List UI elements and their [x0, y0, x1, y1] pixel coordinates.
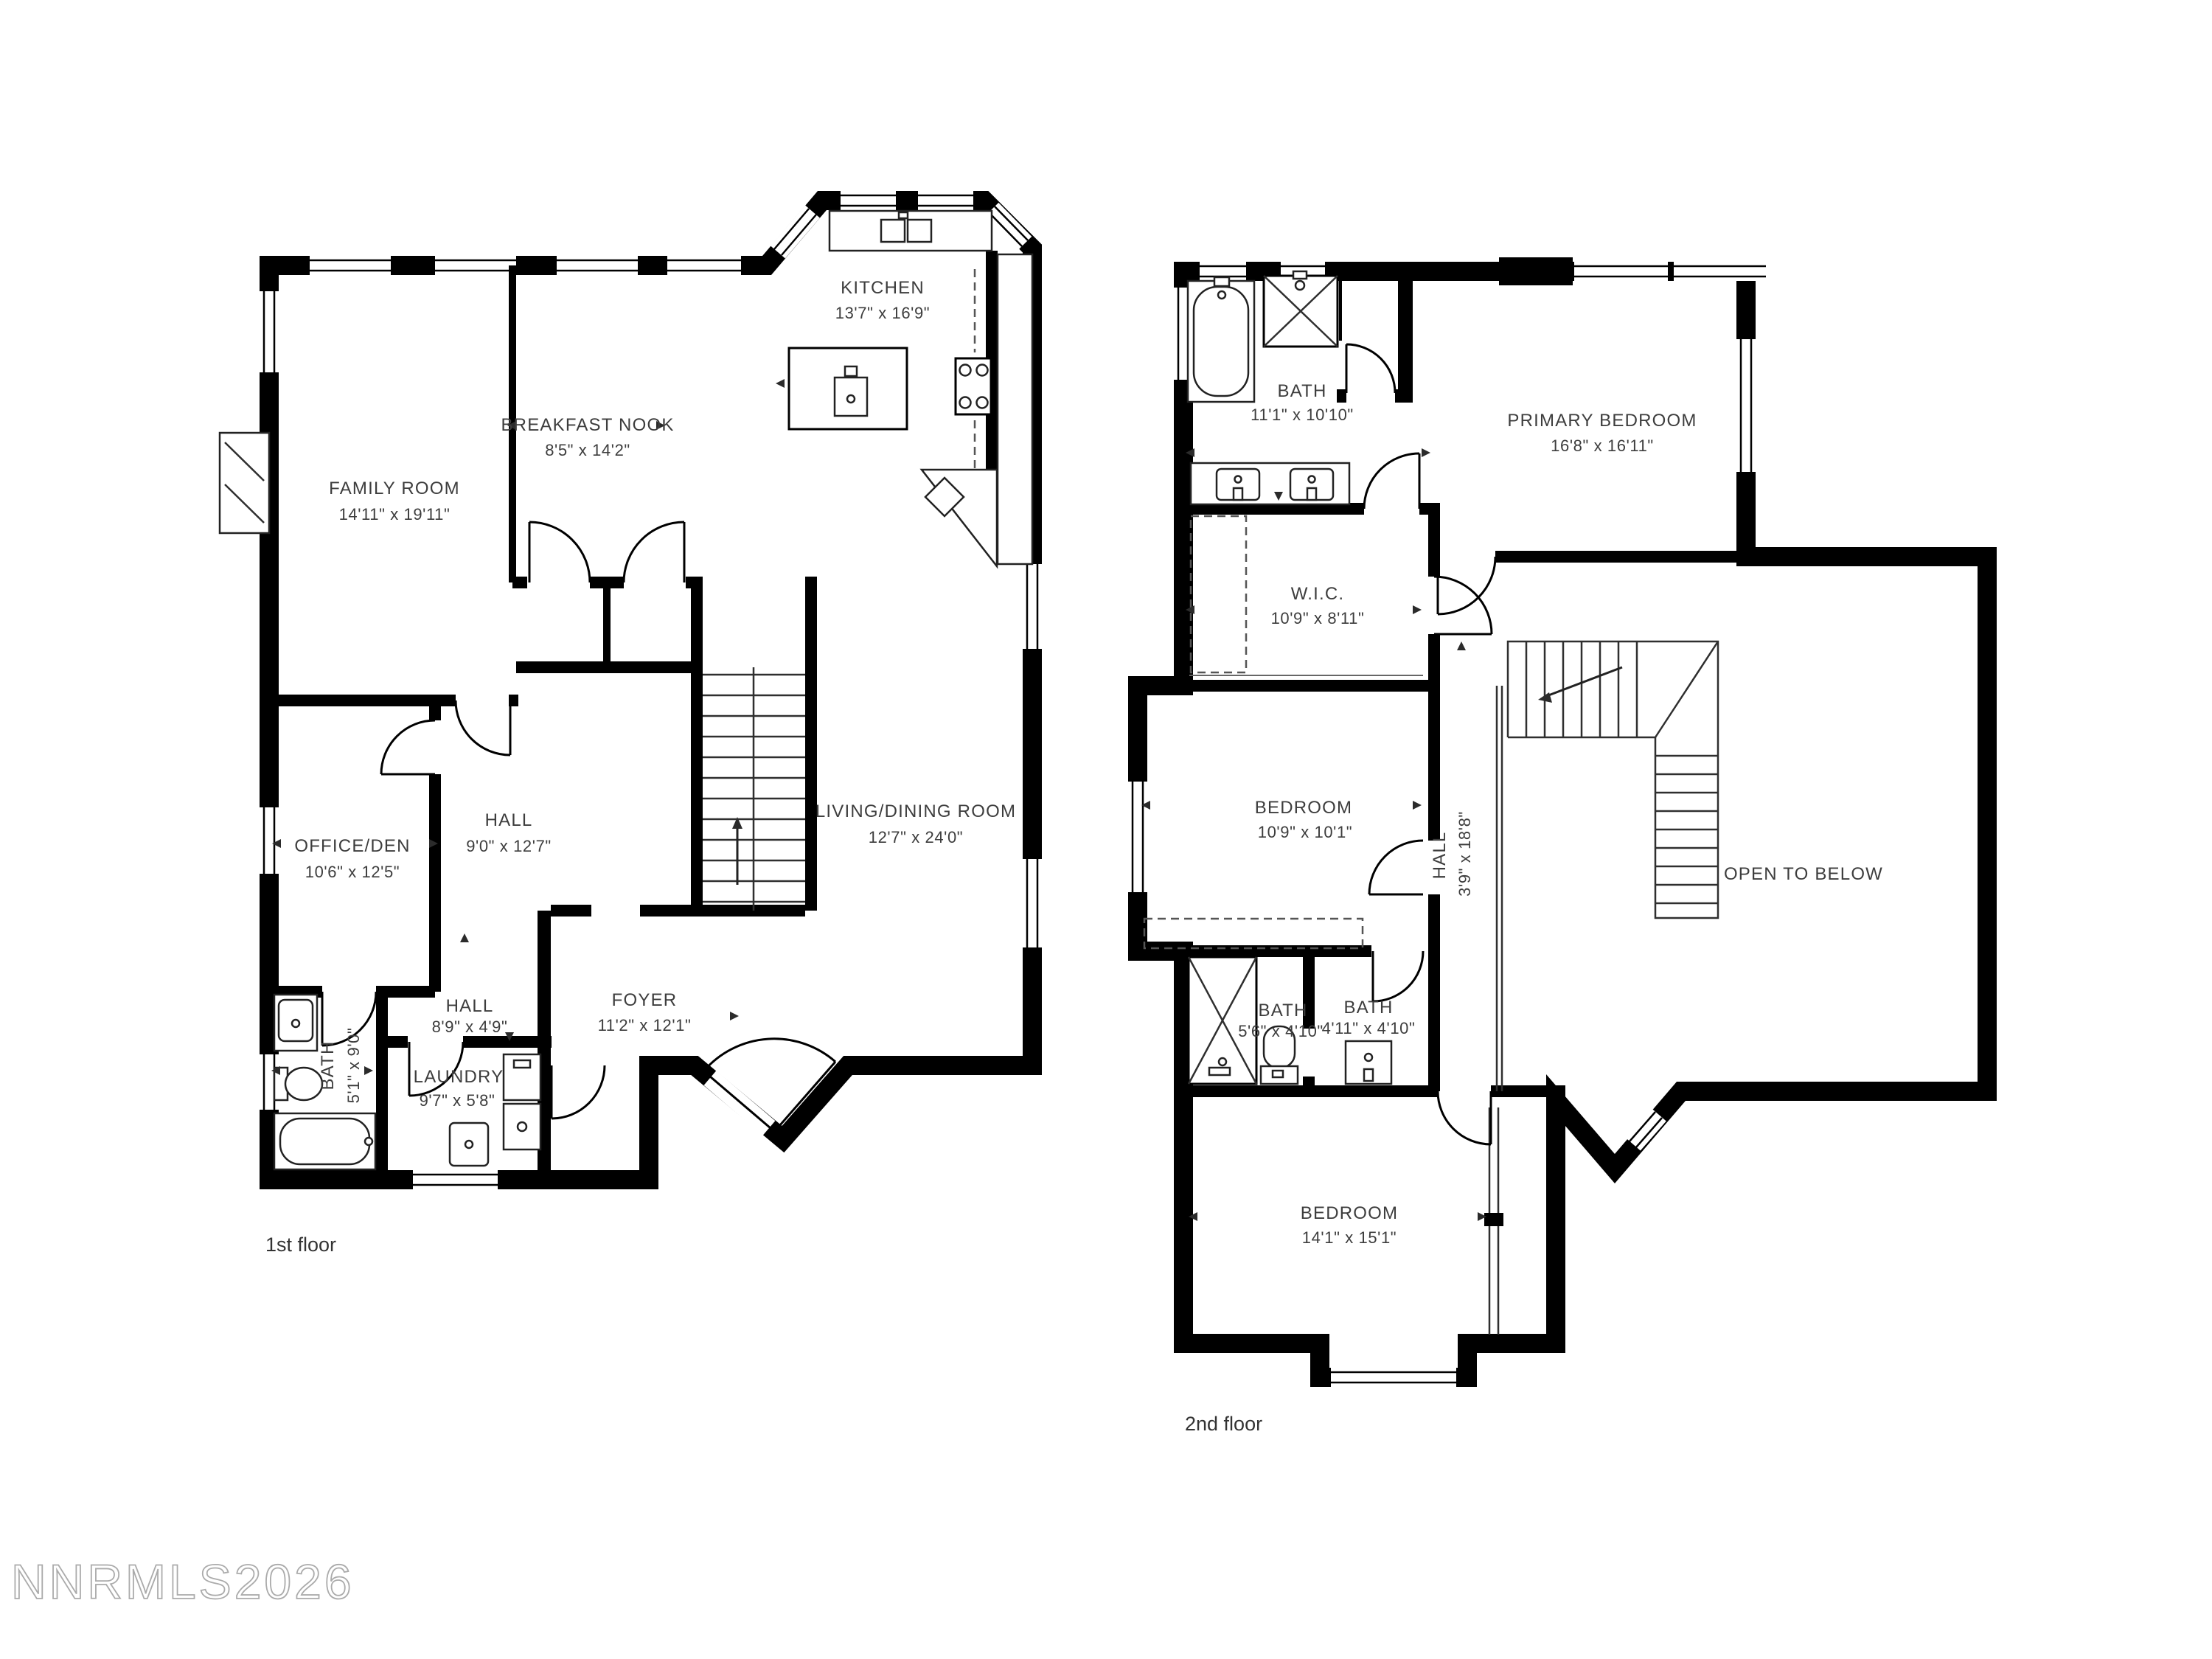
room-label-wic: W.I.C. [1291, 584, 1345, 604]
room-label-hall: HALL [485, 810, 533, 830]
room-dims-bath-right: 4'11" x 4'10" [1322, 1019, 1416, 1037]
bathtub-icon [1188, 277, 1254, 402]
floor2-label: 2nd floor [1185, 1413, 1262, 1435]
shower-icon-bath-left [1189, 957, 1256, 1084]
room-dims-bath-left: 5'6" x 4'10" [1238, 1022, 1324, 1040]
sink-icon-bath-right [1346, 1041, 1391, 1084]
room-dims-foyer: 11'2" x 12'1" [598, 1016, 692, 1034]
room-dims-wic: 10'9" x 8'11" [1271, 609, 1365, 627]
fireplace-icon [220, 433, 269, 533]
shower-icon [1264, 271, 1338, 347]
room-label-bedroom-lower: BEDROOM [1301, 1203, 1398, 1223]
second-floor-plan: BATH 11'1" x 10'10" PRIMARY BEDROOM 16'8… [1128, 257, 1987, 1435]
bathroom-sink-icon [274, 995, 317, 1051]
room-dims-kitchen: 13'7" x 16'9" [835, 304, 930, 322]
floorplan-image: KITCHEN 13'7" x 16'9" BREAKFAST NOOK 8'5… [0, 0, 2212, 1659]
room-label-bath: BATH [1277, 381, 1326, 401]
room-dims-breakfast-nook: 8'5" x 14'2" [545, 441, 630, 459]
room-label-laundry: LAUNDRY [414, 1067, 504, 1087]
room-dims-hall-lower: 8'9" x 4'9" [432, 1018, 508, 1036]
double-vanity-icon [1191, 463, 1349, 504]
room-dims-bath: 11'1" x 10'10" [1251, 406, 1354, 424]
room-label-office-den: OFFICE/DEN [294, 836, 410, 856]
washer-icon [504, 1054, 540, 1100]
room-dims-bedroom-mid: 10'9" x 10'1" [1258, 823, 1352, 841]
room-dims-office-den: 10'6" x 12'5" [305, 863, 400, 881]
room-dims-hall: 3'9" x 18'8" [1455, 811, 1474, 897]
room-dims-primary-bedroom: 16'8" x 16'11" [1551, 437, 1654, 455]
room-dims-hall: 9'0" x 12'7" [466, 837, 552, 855]
dryer-icon [504, 1104, 540, 1150]
stove-icon [956, 358, 991, 414]
room-dims-bath: 5'1" x 9'0" [344, 1028, 363, 1104]
room-label-breakfast-nook: BREAKFAST NOOK [501, 415, 674, 435]
room-label-hall: HALL [1430, 832, 1450, 880]
bathtub-icon [274, 1113, 375, 1169]
room-label-primary-bedroom: PRIMARY BEDROOM [1507, 411, 1697, 431]
watermark: NNRMLS2026 [11, 1554, 355, 1609]
first-floor-plan: KITCHEN 13'7" x 16'9" BREAKFAST NOOK 8'5… [220, 191, 1042, 1256]
room-label-bedroom-mid: BEDROOM [1255, 798, 1352, 818]
room-label-living-dining: LIVING/DINING ROOM [815, 801, 1016, 821]
room-dims-laundry: 9'7" x 5'8" [420, 1091, 495, 1110]
floorplan-canvas: KITCHEN 13'7" x 16'9" BREAKFAST NOOK 8'5… [0, 0, 2212, 1659]
room-dims-living-dining: 12'7" x 24'0" [869, 828, 963, 846]
room-label-open-to-below: OPEN TO BELOW [1724, 864, 1883, 884]
room-label-kitchen: KITCHEN [841, 278, 925, 298]
laundry-sink-icon [450, 1123, 488, 1166]
room-label-bath-left: BATH [1258, 1001, 1307, 1020]
floor1-label: 1st floor [265, 1234, 336, 1256]
room-label-bath-right: BATH [1343, 998, 1393, 1018]
toilet-icon [274, 1068, 322, 1100]
room-label-hall-lower: HALL [446, 996, 494, 1016]
room-label-family-room: FAMILY ROOM [329, 479, 460, 498]
kitchen-island [789, 348, 907, 429]
room-label-foyer: FOYER [612, 990, 678, 1010]
room-label-bath: BATH [318, 1040, 338, 1090]
room-dims-bedroom-lower: 14'1" x 15'1" [1302, 1228, 1397, 1247]
room-dims-family-room: 14'11" x 19'11" [339, 505, 451, 524]
